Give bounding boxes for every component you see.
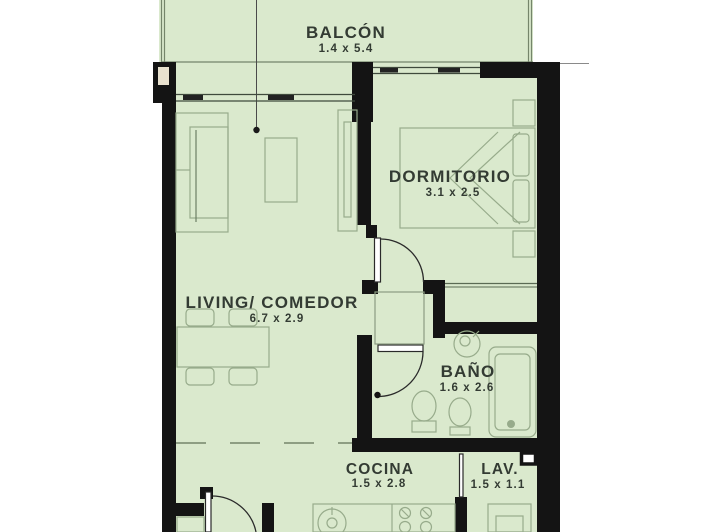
column-inner (158, 67, 169, 85)
dims-balcon: 1.4 x 5.4 (319, 43, 374, 55)
wall-top-middle (352, 62, 373, 122)
wall-right (537, 62, 560, 532)
floor-plan-page: BALCÓN 1.4 x 5.4 DORMITORIO 3.1 x 2.5 LI… (0, 0, 720, 532)
dims-dormitorio: 3.1 x 2.5 (426, 187, 481, 199)
wall-cap-bedroom-door (366, 225, 377, 238)
wall-entry-stub (262, 503, 274, 532)
bathroom-door-leaf (378, 345, 423, 352)
dims-bano: 1.6 x 2.6 (440, 382, 495, 394)
dims-living: 6.7 x 2.9 (250, 313, 305, 325)
label-lav: LAV. (481, 461, 519, 478)
label-bano: BAÑO (441, 361, 496, 381)
wall-closet-bath (433, 322, 548, 334)
shower-drain (507, 420, 515, 428)
wall-bath-bottom (352, 438, 560, 452)
projection-dot (253, 127, 259, 133)
label-balcon: BALCÓN (306, 23, 386, 42)
entry-door-leaf (206, 492, 212, 532)
wall-living-bedroom (357, 122, 371, 225)
floor-plan: BALCÓN 1.4 x 5.4 DORMITORIO 3.1 x 2.5 LI… (0, 0, 720, 532)
dims-cocina: 1.5 x 2.8 (352, 478, 407, 490)
living-slider-handle2 (268, 95, 294, 100)
bedroom-window-handle1 (380, 68, 398, 73)
lav-corner-duct (522, 453, 536, 464)
bathroom-door-hinge (374, 392, 380, 398)
label-dormitorio: DORMITORIO (389, 167, 511, 186)
living-slider-handle1 (183, 95, 203, 100)
dims-lav: 1.5 x 1.1 (471, 479, 526, 491)
wall-cocina-lav (455, 497, 467, 532)
label-cocina: COCINA (346, 461, 414, 478)
bedroom-window-handle2 (438, 68, 460, 73)
wall-left (162, 62, 176, 532)
bedroom-door-leaf (375, 238, 381, 282)
wall-entry-left (176, 503, 204, 516)
wall-living-bath (357, 335, 372, 442)
label-living: LIVING/ COMEDOR (186, 293, 359, 312)
lav-door-leaf (460, 454, 464, 497)
